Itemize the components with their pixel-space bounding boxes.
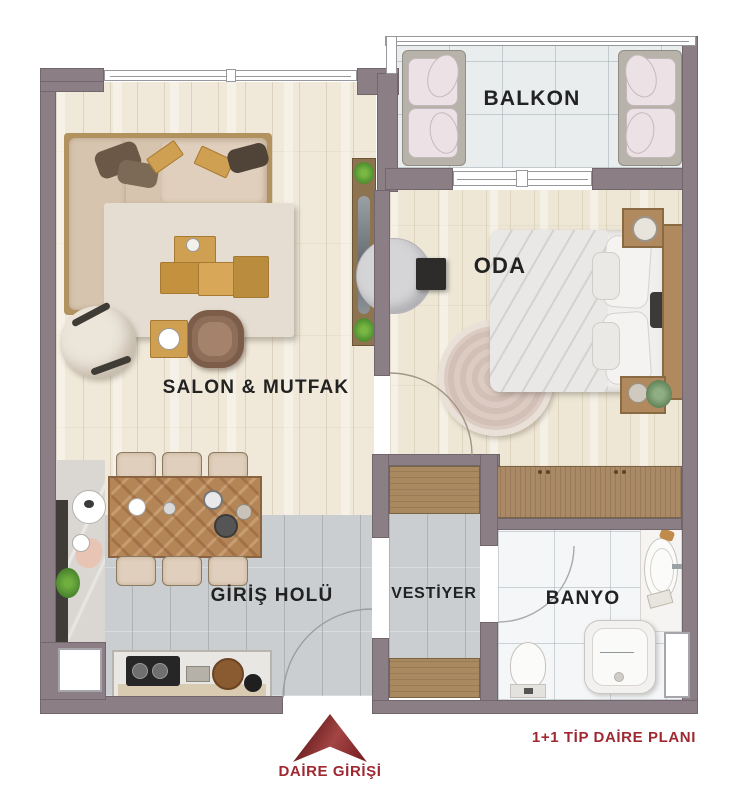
coffee-table-2 [160,262,200,294]
wall-balcony-right-seg [592,168,696,190]
table-vase [163,502,176,515]
table-cup [236,504,252,520]
label-salon-mutfak: SALON & MUTFAK [156,377,356,399]
floor-plan: BALKON ODA SALON & MUTFAK GİRİŞ HOLÜ VES… [0,0,748,795]
toilet-flush [524,688,533,694]
dining-chair-bottom-2 [162,556,202,586]
kitchen-plant-icon [56,568,80,598]
plant-bottom-icon [354,318,374,342]
entrance-arrow-up-icon [293,714,367,762]
plan-title: 1+1 TİP DAİRE PLANI [510,729,696,746]
coffee-table-4 [233,256,269,298]
nightstand-decor [628,383,648,403]
coffee-table-3 [198,262,236,296]
nightstand-plant-icon [646,380,672,408]
salon-window-mullion [226,69,236,82]
pan-black [244,674,262,692]
bed-headboard [662,224,684,400]
wall-bottom-right [372,700,698,714]
armchair-seat [198,322,232,356]
table-decor-flower [186,238,200,252]
kitchen-cup [72,534,90,552]
fruit-bowl [212,658,244,690]
cooktop-burner-2 [152,663,168,679]
label-balkon: BALKON [452,87,612,111]
toilet-bowl [510,642,546,688]
wardrobe-handle-4 [622,470,626,474]
oda-door-opening [374,376,390,454]
table-plate-dark [214,514,238,538]
vestiyer-closet-top [389,466,480,514]
cooktop-burner-1 [132,663,148,679]
balcony-rail-left [386,36,397,74]
entrance-door-opening [283,696,372,714]
wall-vestiyer-banyo-a [480,454,498,546]
label-banyo: BANYO [543,588,623,610]
wall-left [40,68,56,714]
wardrobe-handle-2 [546,470,550,474]
balcony-rail-top [385,36,696,46]
bath-sink-inner [650,548,674,592]
wardrobe-handle-1 [538,470,542,474]
plant-top-icon [354,162,374,184]
dining-chair-bottom-1 [116,556,156,586]
kitchen-corner-window [58,648,102,692]
banyo-door-opening [480,546,498,622]
wall-balcony-left-seg [385,168,453,190]
side-table-flower [158,328,180,350]
label-vestiyer: VESTİYER [386,585,482,603]
label-oda: ODA [450,253,550,279]
bedroom-wardrobe [490,466,682,518]
nightstand-lamp [632,216,658,242]
table-plate-2 [203,490,223,510]
oda-pouf-table [416,258,446,290]
wardrobe-handle-3 [614,470,618,474]
label-giris-holu: GİRİŞ HOLÜ [207,585,337,607]
wall-top-left-seg [40,68,104,82]
bed-pillow-4 [592,322,620,370]
dining-chair-bottom-3 [208,556,248,586]
cutting-board [186,666,210,682]
entrance-label: DAİRE GİRİŞİ [260,763,400,780]
bed-pillow-3 [592,252,620,300]
wall-divider-mid [374,190,390,376]
shower-arrow-line [600,652,634,653]
wall-banyo-top [480,518,682,530]
table-plate-1 [128,498,146,516]
banyo-shaft-window [664,632,690,698]
bath-faucet [672,564,682,569]
shower-drain [614,672,624,682]
wall-hall-vestiyer-a [372,454,389,538]
kitchen-plate-food [84,500,94,508]
sliding-door-mullion [516,170,528,187]
vestiyer-closet-bottom [389,658,480,698]
wall-right [682,36,698,714]
